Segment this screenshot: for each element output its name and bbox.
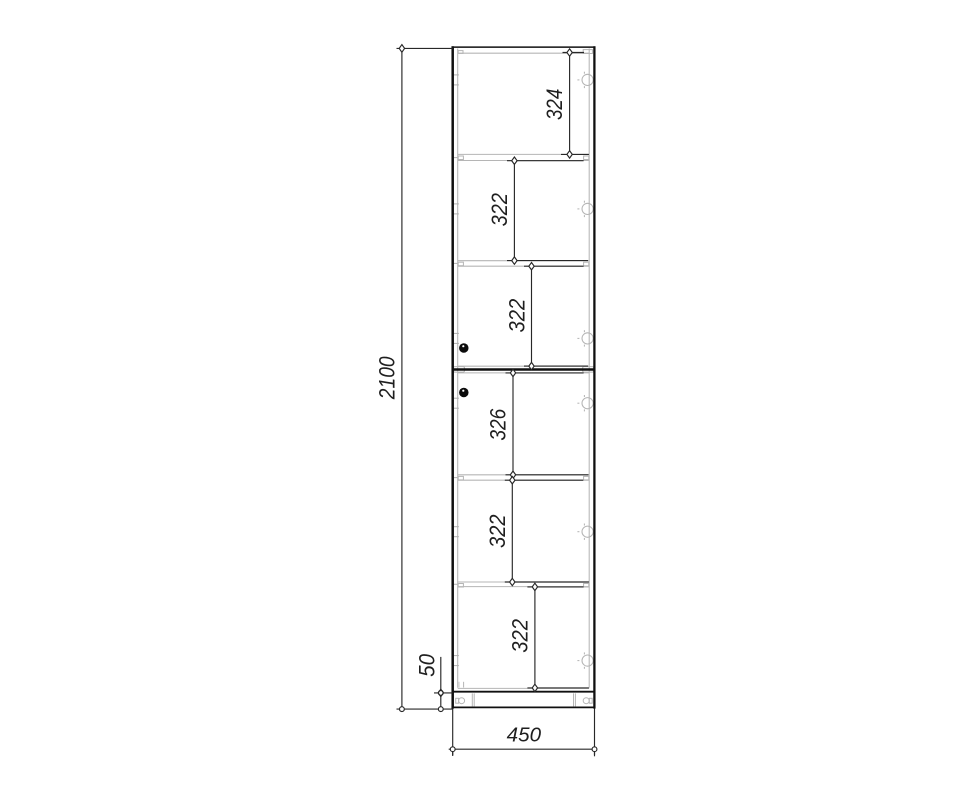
svg-text:322: 322: [487, 193, 512, 227]
svg-text:50: 50: [414, 654, 439, 677]
svg-text:2100: 2100: [374, 356, 399, 400]
svg-text:450: 450: [507, 724, 542, 747]
svg-text:322: 322: [508, 619, 533, 653]
svg-text:322: 322: [504, 298, 529, 332]
svg-text:326: 326: [486, 408, 511, 440]
svg-text:324: 324: [542, 89, 567, 120]
svg-text:322: 322: [485, 514, 510, 548]
